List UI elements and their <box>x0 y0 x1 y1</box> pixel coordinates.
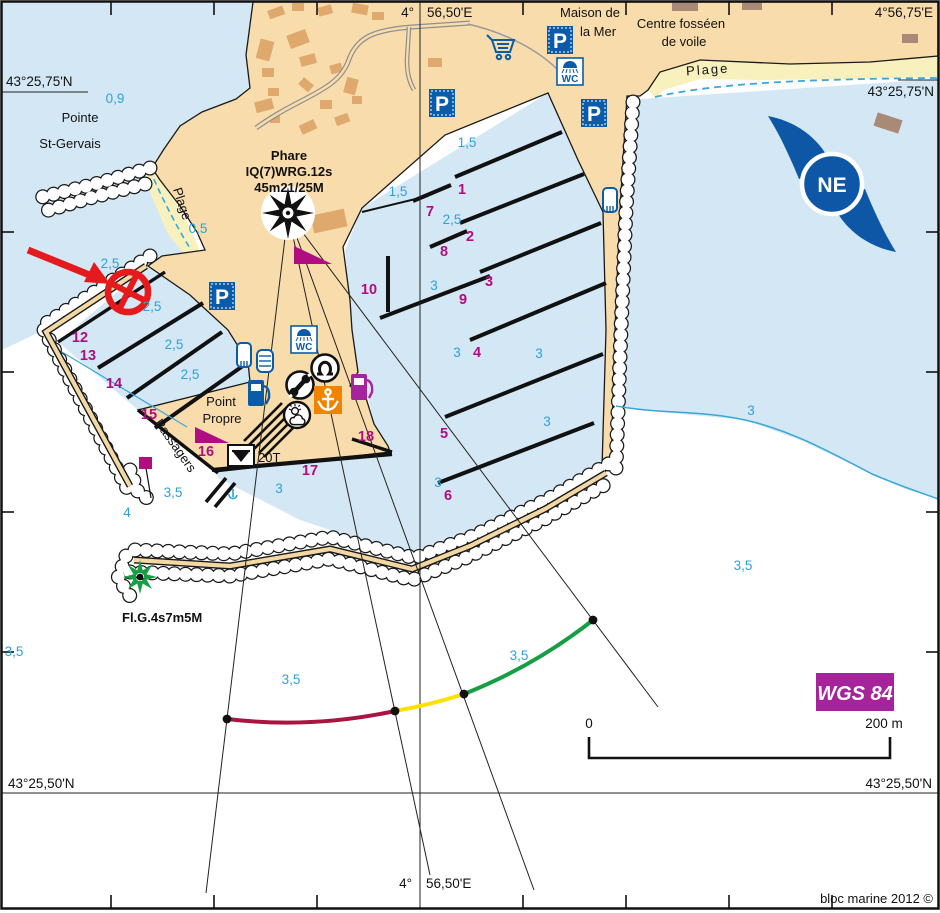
weather-info-icon <box>284 402 310 428</box>
centre-label-1: Centre fosséen <box>637 16 725 31</box>
depth-label: 3 <box>543 414 551 429</box>
svg-text:P: P <box>435 93 449 116</box>
pointe-label-1: Pointe <box>62 110 99 125</box>
svg-text:P: P <box>587 103 601 126</box>
point-propre-label-1: Point <box>206 394 236 409</box>
phare-label-3: 45m21/25M <box>254 180 323 195</box>
depth-label: 1,5 <box>458 135 477 150</box>
berth-number-label: 15 <box>141 407 157 423</box>
depth-label: 2,5 <box>165 337 184 352</box>
lon-main-bottom-min: 56,50'E <box>426 876 471 891</box>
depth-label: 3,5 <box>734 558 753 573</box>
depth-label: 3 <box>535 346 543 361</box>
berth-number-label: 4 <box>473 345 481 361</box>
lon-east-label: 4°56,75'E <box>875 5 933 20</box>
berth-number-label: 8 <box>440 244 448 260</box>
depth-label: 3 <box>430 278 438 293</box>
berth-number-label: 5 <box>440 426 448 442</box>
svg-text:WC: WC <box>296 342 313 353</box>
depth-label: 2,5 <box>143 299 162 314</box>
berth-number-label: 14 <box>106 376 122 392</box>
depth-label: 3 <box>453 345 461 360</box>
pointe-label-2: St-Gervais <box>39 136 101 151</box>
lat-north-left-label: 43°25,75'N <box>6 74 73 89</box>
berth-number-label: 12 <box>72 330 88 346</box>
phare-label-2: IQ(7)WRG.12s <box>246 164 333 179</box>
berth-number-label: 1 <box>458 182 466 198</box>
scale-end-label: 200 m <box>865 716 903 731</box>
depth-label: 2,5 <box>181 367 200 382</box>
berth-number-label: 7 <box>426 204 434 220</box>
lat-south-right-label: 43°25,50'N <box>865 776 932 791</box>
berth-number-label: 16 <box>198 444 214 460</box>
depth-label: 3,5 <box>164 485 183 500</box>
svg-text:WC: WC <box>562 74 579 85</box>
lon-main-bottom-deg: 4° <box>399 876 412 891</box>
compass-label: NE <box>817 174 846 197</box>
depth-label: 0,5 <box>189 221 208 236</box>
repair-wrench-icon <box>287 372 314 399</box>
crane-icon <box>228 445 254 466</box>
harbor-office-anchor-icon <box>314 386 342 414</box>
centre-label-2: de voile <box>662 34 707 49</box>
chart-canvas: NE P P P P WC <box>0 0 940 913</box>
depth-label: 3,5 <box>282 672 301 687</box>
light-sector-arc <box>223 616 598 724</box>
depth-label: 1,5 <box>389 184 408 199</box>
point-propre-label-2: Propre <box>202 411 241 426</box>
svg-text:P: P <box>215 286 229 309</box>
crane-capacity-label: 20T <box>258 450 280 465</box>
lat-north-right-label: 43°25,75'N <box>867 84 934 99</box>
depth-label: 2,5 <box>101 256 120 271</box>
svg-text:P: P <box>553 30 567 53</box>
berth-number-label: 2 <box>466 229 474 245</box>
lon-main-top-min: 56,50'E <box>427 5 472 20</box>
depth-label: 2,5 <box>443 212 462 227</box>
berth-number-label: 10 <box>361 282 377 298</box>
berth-number-label: 3 <box>485 274 493 290</box>
maison-label-1: Maison de <box>560 5 620 20</box>
depth-label: 3,5 <box>5 644 24 659</box>
lat-south-left-label: 43°25,50'N <box>8 776 75 791</box>
scale-bar <box>589 737 890 758</box>
berth-number-label: 6 <box>444 488 452 504</box>
scale-zero-label: 0 <box>585 716 593 731</box>
green-light-star-icon <box>123 560 157 594</box>
depth-label: 3 <box>275 481 283 496</box>
datum-label: WGS 84 <box>817 683 893 705</box>
harbor-chart: NE P P P P WC <box>0 0 940 913</box>
maison-label-2: la Mer <box>580 24 617 39</box>
depth-label: 3,5 <box>510 648 529 663</box>
depth-label: 0,9 <box>106 91 125 106</box>
depth-label: 3 <box>747 403 755 418</box>
depth-label: 3 <box>434 475 442 490</box>
credit-label: bloc marine 2012 © <box>820 891 933 906</box>
berth-number-label: 13 <box>80 348 96 364</box>
berth-number-label: 18 <box>358 429 374 445</box>
lon-main-top-deg: 4° <box>401 5 414 20</box>
plage-north-label: Plage <box>686 61 730 79</box>
berth-number-label: 9 <box>459 292 467 308</box>
jetty-light-label: Fl.G.4s7m5M <box>122 610 202 625</box>
sea-east-strip <box>616 79 938 499</box>
depth-label: 4 <box>123 505 131 520</box>
berth-number-label: 17 <box>302 463 318 479</box>
phare-label-1: Phare <box>271 148 307 163</box>
travel-lift-icon <box>312 355 339 382</box>
